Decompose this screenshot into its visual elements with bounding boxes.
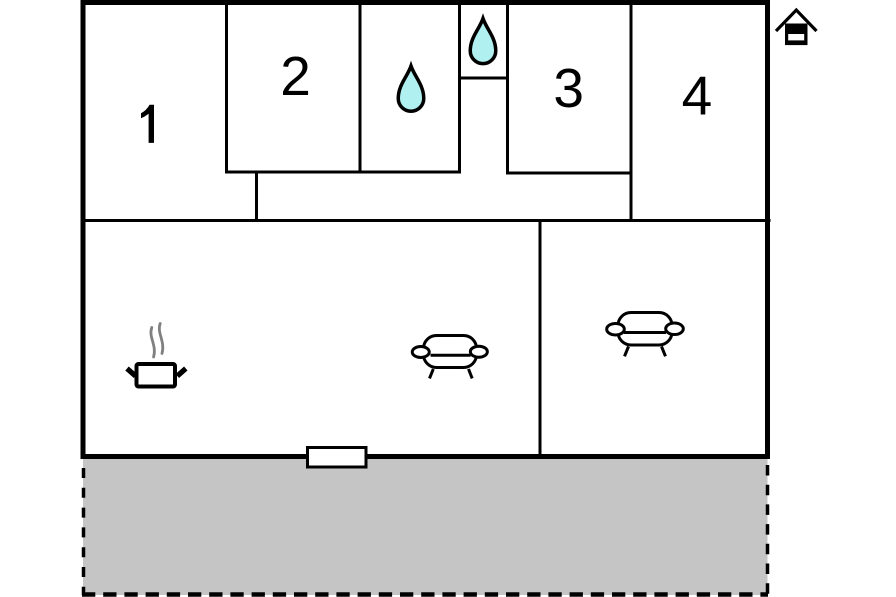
svg-text:2: 2: [280, 45, 311, 107]
svg-text:4: 4: [682, 65, 713, 127]
svg-text:3: 3: [553, 57, 584, 119]
